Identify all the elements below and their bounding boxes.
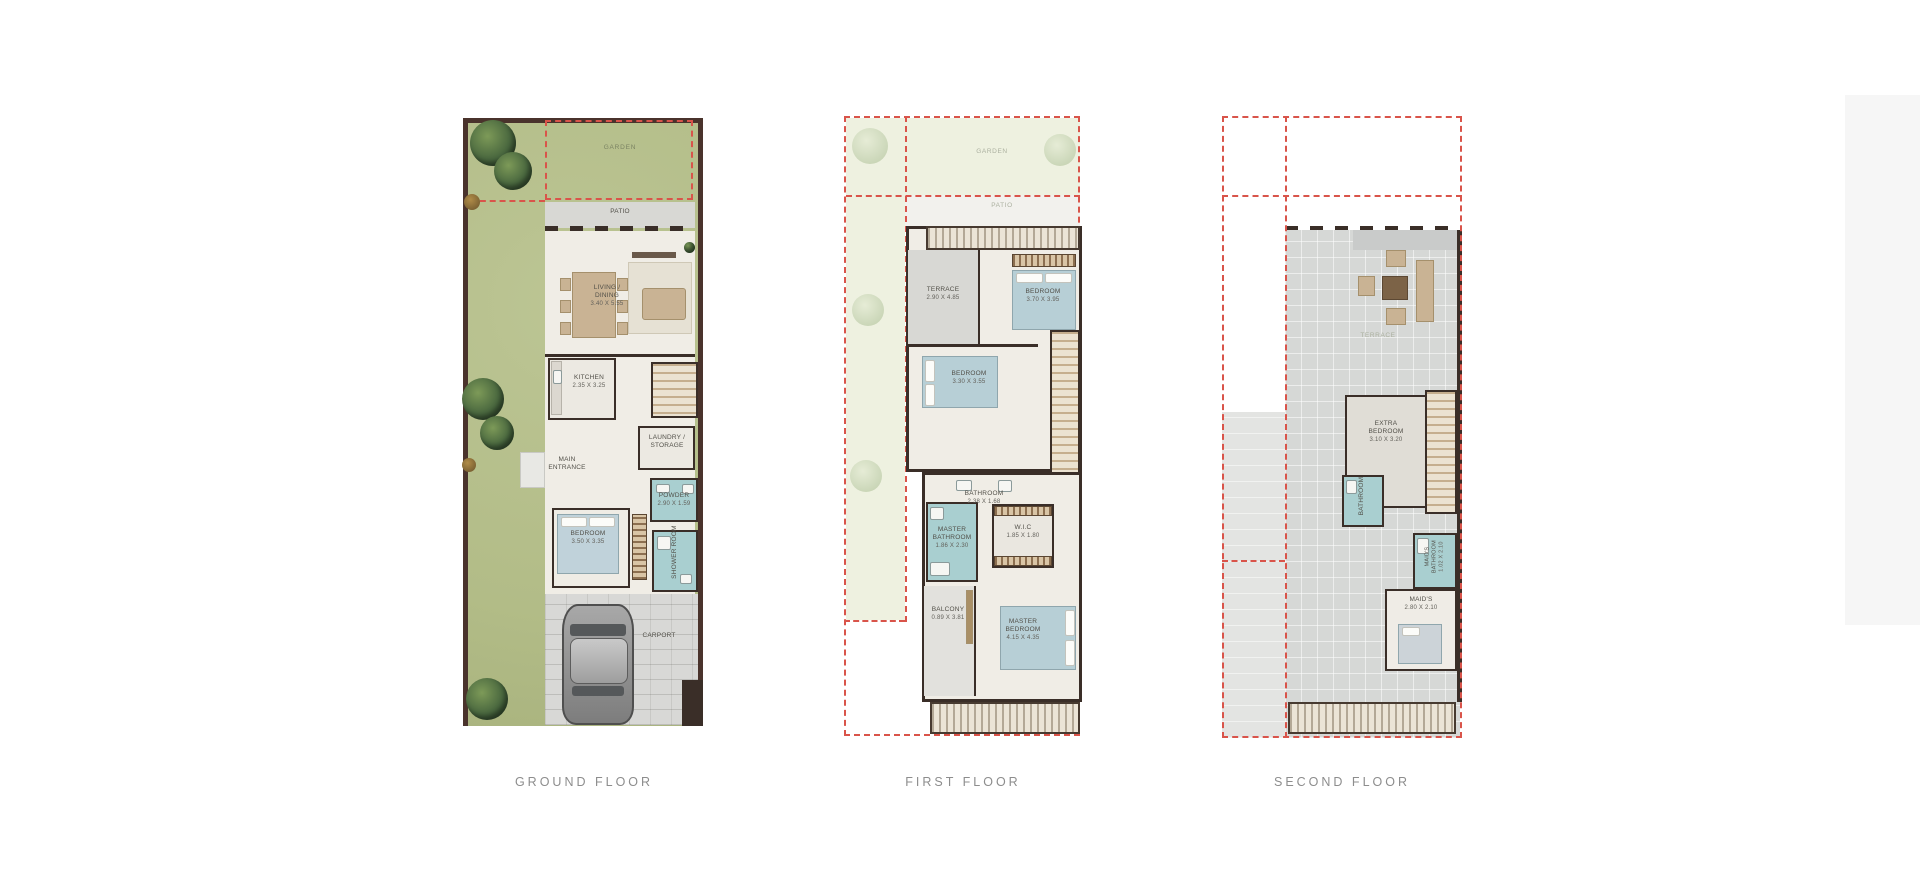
stairs (651, 362, 698, 418)
armchair (1358, 276, 1375, 296)
sofa (642, 288, 686, 320)
indoor-plant (684, 242, 695, 253)
toilet (998, 480, 1012, 492)
sink (656, 484, 670, 493)
tree (494, 152, 532, 190)
sink (1417, 538, 1429, 554)
car-rear-window (572, 686, 624, 696)
dining-chair (617, 322, 628, 335)
plot-dash-garden (846, 195, 1080, 197)
tree-faded (852, 294, 884, 326)
wall (908, 344, 1038, 347)
ground-floor-plan: GARDEN PATIO LIVING / DINING 3.40 X 5.55… (460, 112, 708, 812)
first-floor-title: FIRST FLOOR (842, 775, 1084, 789)
tree-faded (852, 128, 888, 164)
second-floor-plan: TERRACE EXTRA BEDROOM 3.10 X 3.20 BATHRO… (1218, 112, 1466, 812)
sink (956, 480, 972, 491)
garden-dash-left (470, 200, 545, 202)
laundry-storage (638, 426, 695, 470)
dining-chair (560, 322, 571, 335)
pillow (1402, 627, 1420, 636)
dining-chair (617, 300, 628, 313)
stairs (1425, 390, 1457, 514)
plot-dash-top (1222, 195, 1462, 197)
bathtub (930, 562, 950, 576)
tree-faded (850, 460, 882, 492)
armchair (1386, 250, 1406, 267)
wall (545, 354, 695, 357)
tv-console (632, 252, 676, 258)
closet-rail (994, 556, 1052, 566)
second-floor-title: SECOND FLOOR (1218, 775, 1466, 789)
pillow (1016, 273, 1043, 283)
tree (462, 378, 504, 420)
kitchen-sink (553, 370, 562, 384)
pillow (1045, 273, 1072, 283)
closet-rail (994, 506, 1052, 516)
shower-tray (657, 536, 671, 550)
pergola-louvers (926, 226, 1080, 250)
tree (466, 678, 508, 720)
shrub (464, 194, 480, 210)
entry-path (520, 452, 545, 488)
shrub (462, 458, 476, 472)
car-windshield (570, 624, 626, 636)
car-roof (570, 638, 628, 684)
garden-boundary-dash (545, 120, 693, 200)
tree (480, 416, 514, 450)
toilet (680, 574, 692, 584)
shower-tray (1346, 480, 1357, 494)
plot-dash-side (1222, 560, 1285, 562)
terrace-table (1382, 276, 1408, 300)
bench (1416, 260, 1434, 322)
plot-dash-side (844, 620, 905, 622)
pergola-louvers (1288, 702, 1456, 734)
planter (966, 590, 973, 644)
pillow (925, 360, 935, 382)
first-terrace (908, 250, 980, 346)
tree-faded (1044, 134, 1076, 166)
dining-chair (617, 278, 628, 291)
pillow (925, 384, 935, 406)
dining-chair (560, 300, 571, 313)
dining-chair (560, 278, 571, 291)
patio (545, 202, 695, 228)
wardrobe (632, 514, 647, 580)
armchair (1386, 308, 1406, 325)
ground-floor-title: GROUND FLOOR (460, 775, 708, 789)
pillow (1065, 610, 1075, 636)
pergola-louvers (930, 702, 1080, 734)
wall-block (682, 680, 703, 726)
pillow (589, 517, 615, 527)
wardrobe (1012, 254, 1076, 267)
sink (930, 507, 944, 520)
toilet (682, 484, 694, 494)
dining-table (572, 272, 616, 338)
plot-dash-inner (1285, 116, 1287, 738)
pillow (561, 517, 587, 527)
right-edge-panel (1845, 95, 1920, 625)
pillow (1065, 640, 1075, 666)
floorplan-sheet: GARDEN PATIO LIVING / DINING 3.40 X 5.55… (0, 0, 1920, 892)
first-floor-plan: GARDEN PATIO TERRACE 2.90 X 4.85 BEDROOM… (842, 112, 1084, 812)
